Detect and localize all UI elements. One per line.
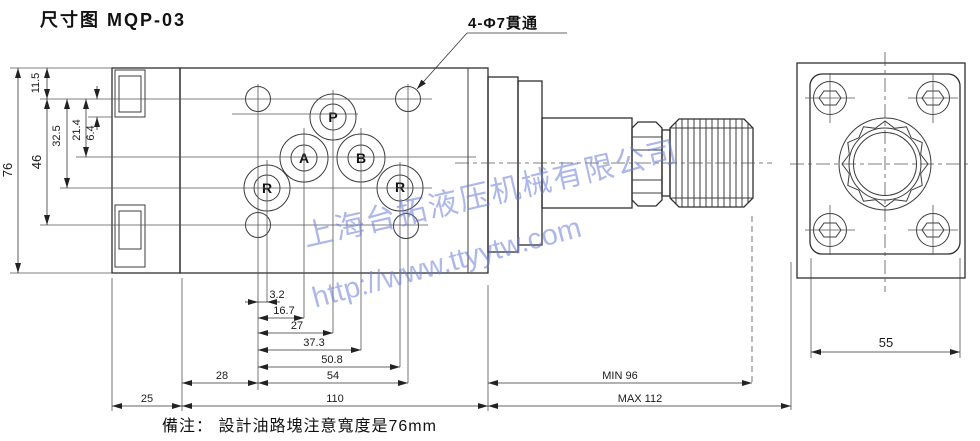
note-text: 備注： 設計油路塊注意寬度是76mm bbox=[162, 412, 437, 436]
technical-drawing: P A B R R bbox=[0, 0, 980, 441]
dim-37-3: 37.3 bbox=[303, 337, 324, 349]
dim-50-8: 50.8 bbox=[321, 354, 342, 366]
flange-bolt-top-right bbox=[908, 73, 958, 123]
dim-max-112: MAX 112 bbox=[618, 393, 662, 405]
dim-min-96: MIN 96 bbox=[602, 370, 637, 382]
dim-11-5: 11.5 bbox=[30, 73, 42, 94]
dim-27: 27 bbox=[291, 320, 303, 332]
flange-end-view bbox=[790, 52, 972, 292]
dim-55: 55 bbox=[879, 335, 893, 350]
dim-3-2: 3.2 bbox=[269, 289, 284, 301]
extension-lines bbox=[10, 68, 960, 411]
dim-54: 54 bbox=[327, 370, 339, 382]
dimension-labels: 76 11.5 46 32.5 21.4 6.4 3.2 16.7 27 37.… bbox=[0, 73, 893, 405]
flange-bolt-top-left bbox=[805, 73, 855, 123]
dim-110: 110 bbox=[326, 393, 344, 405]
dimension-lines bbox=[18, 33, 960, 406]
drawing-title: 尺寸图 MQP-03 bbox=[40, 6, 186, 32]
flange-bolt-bottom-right bbox=[908, 205, 958, 255]
flange-bolt-bottom-left bbox=[805, 205, 855, 255]
front-view-body-outline bbox=[112, 68, 791, 410]
knob-knurling bbox=[676, 119, 748, 207]
dim-6-4: 6.4 bbox=[85, 125, 97, 140]
dimension-drawing-page: P A B R R bbox=[0, 0, 980, 441]
dim-21-4: 21.4 bbox=[71, 119, 83, 140]
dim-76: 76 bbox=[0, 163, 15, 177]
hole-callout-label: 4-Φ7貫通 bbox=[468, 12, 538, 33]
dim-16-7: 16.7 bbox=[273, 305, 294, 317]
dim-25: 25 bbox=[141, 393, 153, 405]
dim-46: 46 bbox=[29, 155, 44, 169]
dim-28: 28 bbox=[216, 370, 228, 382]
front-view-ports: P A B R R bbox=[244, 87, 423, 239]
dim-32-5: 32.5 bbox=[51, 125, 63, 146]
